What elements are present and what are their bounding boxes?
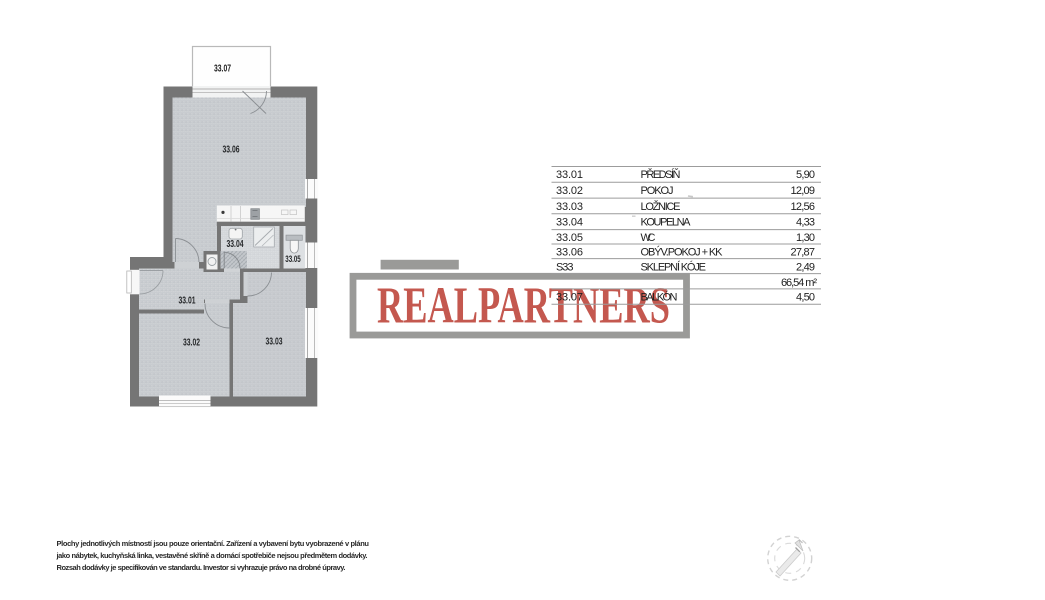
svg-text:KOUPELNA: KOUPELNA	[641, 217, 692, 229]
svg-text:33.06: 33.06	[223, 145, 240, 156]
svg-text:66,54 m²: 66,54 m²	[781, 277, 817, 289]
svg-text:OBÝV.POKOJ + KK: OBÝV.POKOJ + KK	[641, 246, 724, 259]
svg-text:Plochy jednotlivých místností: Plochy jednotlivých místností jsou pouze…	[57, 539, 370, 548]
svg-text:33.05: 33.05	[285, 254, 301, 264]
svg-text:33.06: 33.06	[556, 247, 583, 259]
svg-text:33.01: 33.01	[556, 169, 583, 181]
svg-text:33.03: 33.03	[556, 201, 583, 213]
svg-text:33.01: 33.01	[179, 296, 196, 307]
svg-text:Rozsah dodávky je specifikován: Rozsah dodávky je specifikován ve standa…	[57, 563, 346, 572]
svg-text:jako nábytek, kuchyňská linka,: jako nábytek, kuchyňská linka, vestavěné…	[56, 551, 368, 560]
svg-text:REALPARTNERS: REALPARTNERS	[377, 278, 670, 335]
svg-text:33.04: 33.04	[556, 217, 583, 229]
svg-text:5,90: 5,90	[796, 169, 815, 181]
svg-text:PŘEDSÍŇ: PŘEDSÍŇ	[641, 168, 681, 181]
svg-text:27,87: 27,87	[791, 247, 816, 259]
svg-text:33.07: 33.07	[556, 291, 583, 303]
svg-text:BALKÓN: BALKÓN	[641, 290, 678, 303]
svg-text:33.05: 33.05	[556, 232, 583, 244]
svg-text:33.04: 33.04	[227, 239, 244, 250]
svg-text:LOŽNICE: LOŽNICE	[641, 200, 681, 213]
svg-text:SKLEPNÍ KÓJE: SKLEPNÍ KÓJE	[641, 261, 707, 274]
svg-text:33.07: 33.07	[214, 64, 231, 75]
svg-text:4,33: 4,33	[796, 217, 815, 229]
svg-text:WC: WC	[641, 232, 656, 244]
svg-text:4,50: 4,50	[796, 291, 815, 303]
svg-text:12,09: 12,09	[791, 185, 816, 197]
svg-text:33.02: 33.02	[556, 185, 583, 197]
svg-text:S33: S33	[556, 262, 574, 274]
svg-text:12,56: 12,56	[791, 201, 816, 213]
svg-text:33.02: 33.02	[183, 338, 200, 349]
svg-text:POKOJ: POKOJ	[641, 185, 674, 197]
svg-text:1,30: 1,30	[796, 232, 815, 244]
svg-text:2,49: 2,49	[796, 262, 815, 274]
svg-text:33.03: 33.03	[266, 337, 283, 348]
